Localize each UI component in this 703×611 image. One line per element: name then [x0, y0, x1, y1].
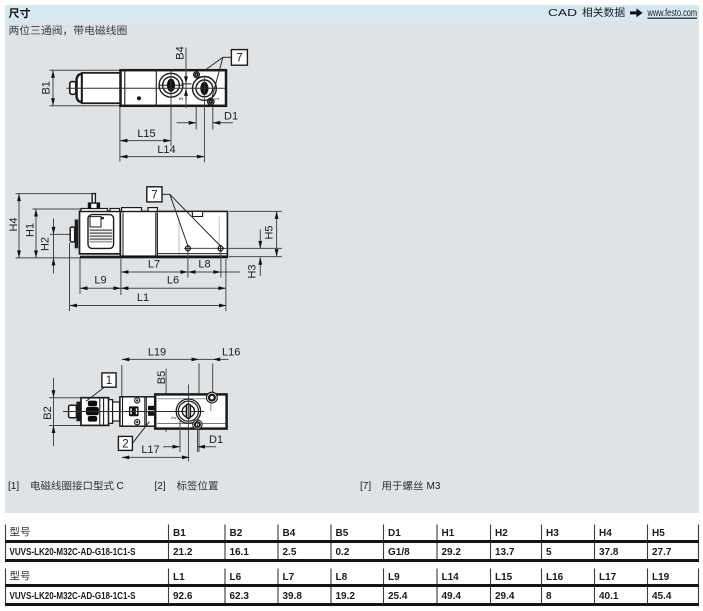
svg-text:21.2: 21.2	[173, 547, 193, 558]
svg-text:L9: L9	[94, 275, 106, 287]
svg-text:L16: L16	[546, 572, 564, 583]
svg-text:H3: H3	[546, 528, 559, 539]
svg-text:D1: D1	[224, 110, 238, 122]
svg-text:L8: L8	[336, 572, 348, 583]
svg-text:7: 7	[151, 189, 157, 201]
svg-text:VUVS-LK20-M32C-AD-G18-1C1-S: VUVS-LK20-M32C-AD-G18-1C1-S	[10, 591, 136, 602]
svg-text:B5: B5	[336, 528, 349, 539]
svg-text:M3: M3	[427, 481, 441, 492]
svg-text:2.5: 2.5	[283, 547, 297, 558]
svg-text:B2: B2	[230, 528, 243, 539]
svg-text:2: 2	[122, 438, 128, 450]
svg-text:L17: L17	[599, 572, 617, 583]
svg-text:25.4: 25.4	[388, 591, 408, 602]
svg-text:G1/8: G1/8	[388, 547, 410, 558]
svg-text:[2]: [2]	[155, 481, 166, 492]
svg-text:B1: B1	[173, 528, 186, 539]
svg-text:29.2: 29.2	[442, 547, 462, 558]
svg-text:8: 8	[546, 591, 552, 602]
svg-text:L14: L14	[442, 572, 460, 583]
svg-text:L6: L6	[230, 572, 242, 583]
svg-text:62.3: 62.3	[230, 591, 250, 602]
svg-text:H5: H5	[652, 528, 665, 539]
svg-text:C: C	[117, 481, 124, 492]
svg-text:2: 2	[171, 416, 177, 419]
svg-text:L7: L7	[148, 259, 160, 271]
svg-text:1: 1	[214, 97, 220, 100]
svg-text:L19: L19	[652, 572, 670, 583]
svg-text:L9: L9	[388, 572, 400, 583]
svg-text:92.6: 92.6	[173, 591, 193, 602]
svg-text:37.8: 37.8	[599, 547, 619, 558]
svg-text:B2: B2	[42, 406, 54, 419]
svg-text:[7]: [7]	[360, 481, 371, 492]
svg-text:L6: L6	[167, 275, 179, 287]
svg-text:40.1: 40.1	[599, 591, 619, 602]
svg-text:[1]: [1]	[8, 481, 19, 492]
svg-text:49.4: 49.4	[442, 591, 462, 602]
svg-text:3: 3	[179, 97, 185, 100]
svg-text:CAD: CAD	[548, 7, 578, 19]
svg-text:13.7: 13.7	[495, 547, 515, 558]
svg-text:L19: L19	[148, 346, 166, 358]
svg-text:VUVS-LK20-M32C-AD-G18-1C1-S: VUVS-LK20-M32C-AD-G18-1C1-S	[10, 547, 136, 558]
svg-text:H2: H2	[39, 237, 51, 251]
svg-text:H4: H4	[599, 528, 612, 539]
svg-text:5: 5	[546, 547, 552, 558]
svg-text:H5: H5	[263, 225, 275, 239]
svg-text:B4: B4	[174, 46, 186, 59]
svg-text:B1: B1	[40, 81, 52, 94]
svg-text:L1: L1	[137, 292, 149, 304]
svg-text:L1: L1	[173, 572, 185, 583]
svg-text:www.festo.com: www.festo.com	[647, 7, 697, 19]
svg-text:H1: H1	[24, 223, 36, 237]
svg-text:L17: L17	[141, 444, 159, 456]
svg-text:B4: B4	[283, 528, 296, 539]
svg-text:L7: L7	[283, 572, 295, 583]
svg-text:L8: L8	[198, 259, 210, 271]
svg-text:29.4: 29.4	[495, 591, 515, 602]
svg-text:45.4: 45.4	[652, 591, 672, 602]
svg-text:7: 7	[236, 52, 242, 64]
svg-text:39.8: 39.8	[283, 591, 303, 602]
svg-text:16.1: 16.1	[230, 547, 250, 558]
svg-text:19.2: 19.2	[336, 591, 356, 602]
svg-text:D1: D1	[388, 528, 401, 539]
svg-text:L15: L15	[495, 572, 513, 583]
svg-text:L16: L16	[222, 346, 240, 358]
svg-text:L14: L14	[157, 144, 175, 156]
svg-text:H3: H3	[246, 264, 258, 278]
svg-text:0.2: 0.2	[336, 547, 350, 558]
svg-text:1: 1	[106, 375, 112, 387]
svg-text:H2: H2	[495, 528, 508, 539]
svg-text:L15: L15	[137, 128, 155, 140]
svg-text:H4: H4	[8, 217, 20, 231]
svg-text:27.7: 27.7	[652, 547, 672, 558]
svg-text:H1: H1	[442, 528, 455, 539]
svg-text:D1: D1	[209, 434, 223, 446]
